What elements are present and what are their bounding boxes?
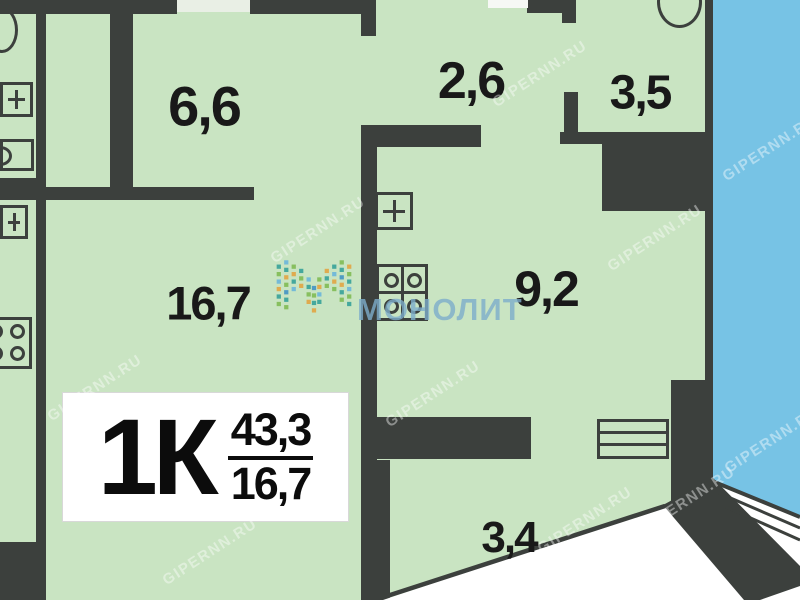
door-opening [177, 0, 250, 12]
living-area-value: 16,7 [231, 460, 311, 509]
room-area-label: 3,4 [481, 513, 536, 563]
room-area-label: 16,7 [166, 276, 249, 331]
room-area-label: 6,6 [168, 74, 240, 139]
unit-type-label: 1К [98, 403, 214, 511]
developer-watermark: МОНОЛИТ [357, 292, 523, 328]
total-area-value: 43,3 [228, 406, 314, 460]
monolit-logo-icon [276, 256, 352, 320]
unit-summary-box: 1К 43,3 16,7 [62, 392, 349, 522]
room-area-label: 9,2 [514, 260, 578, 318]
room-area-label: 3,5 [610, 66, 671, 121]
door-opening [488, 0, 528, 8]
area-fraction: 43,3 16,7 [228, 406, 314, 508]
floor-plan: 6,6 2,6 3,5 16,7 9,2 3,4 1К 43,3 16,7 МО… [0, 0, 800, 600]
